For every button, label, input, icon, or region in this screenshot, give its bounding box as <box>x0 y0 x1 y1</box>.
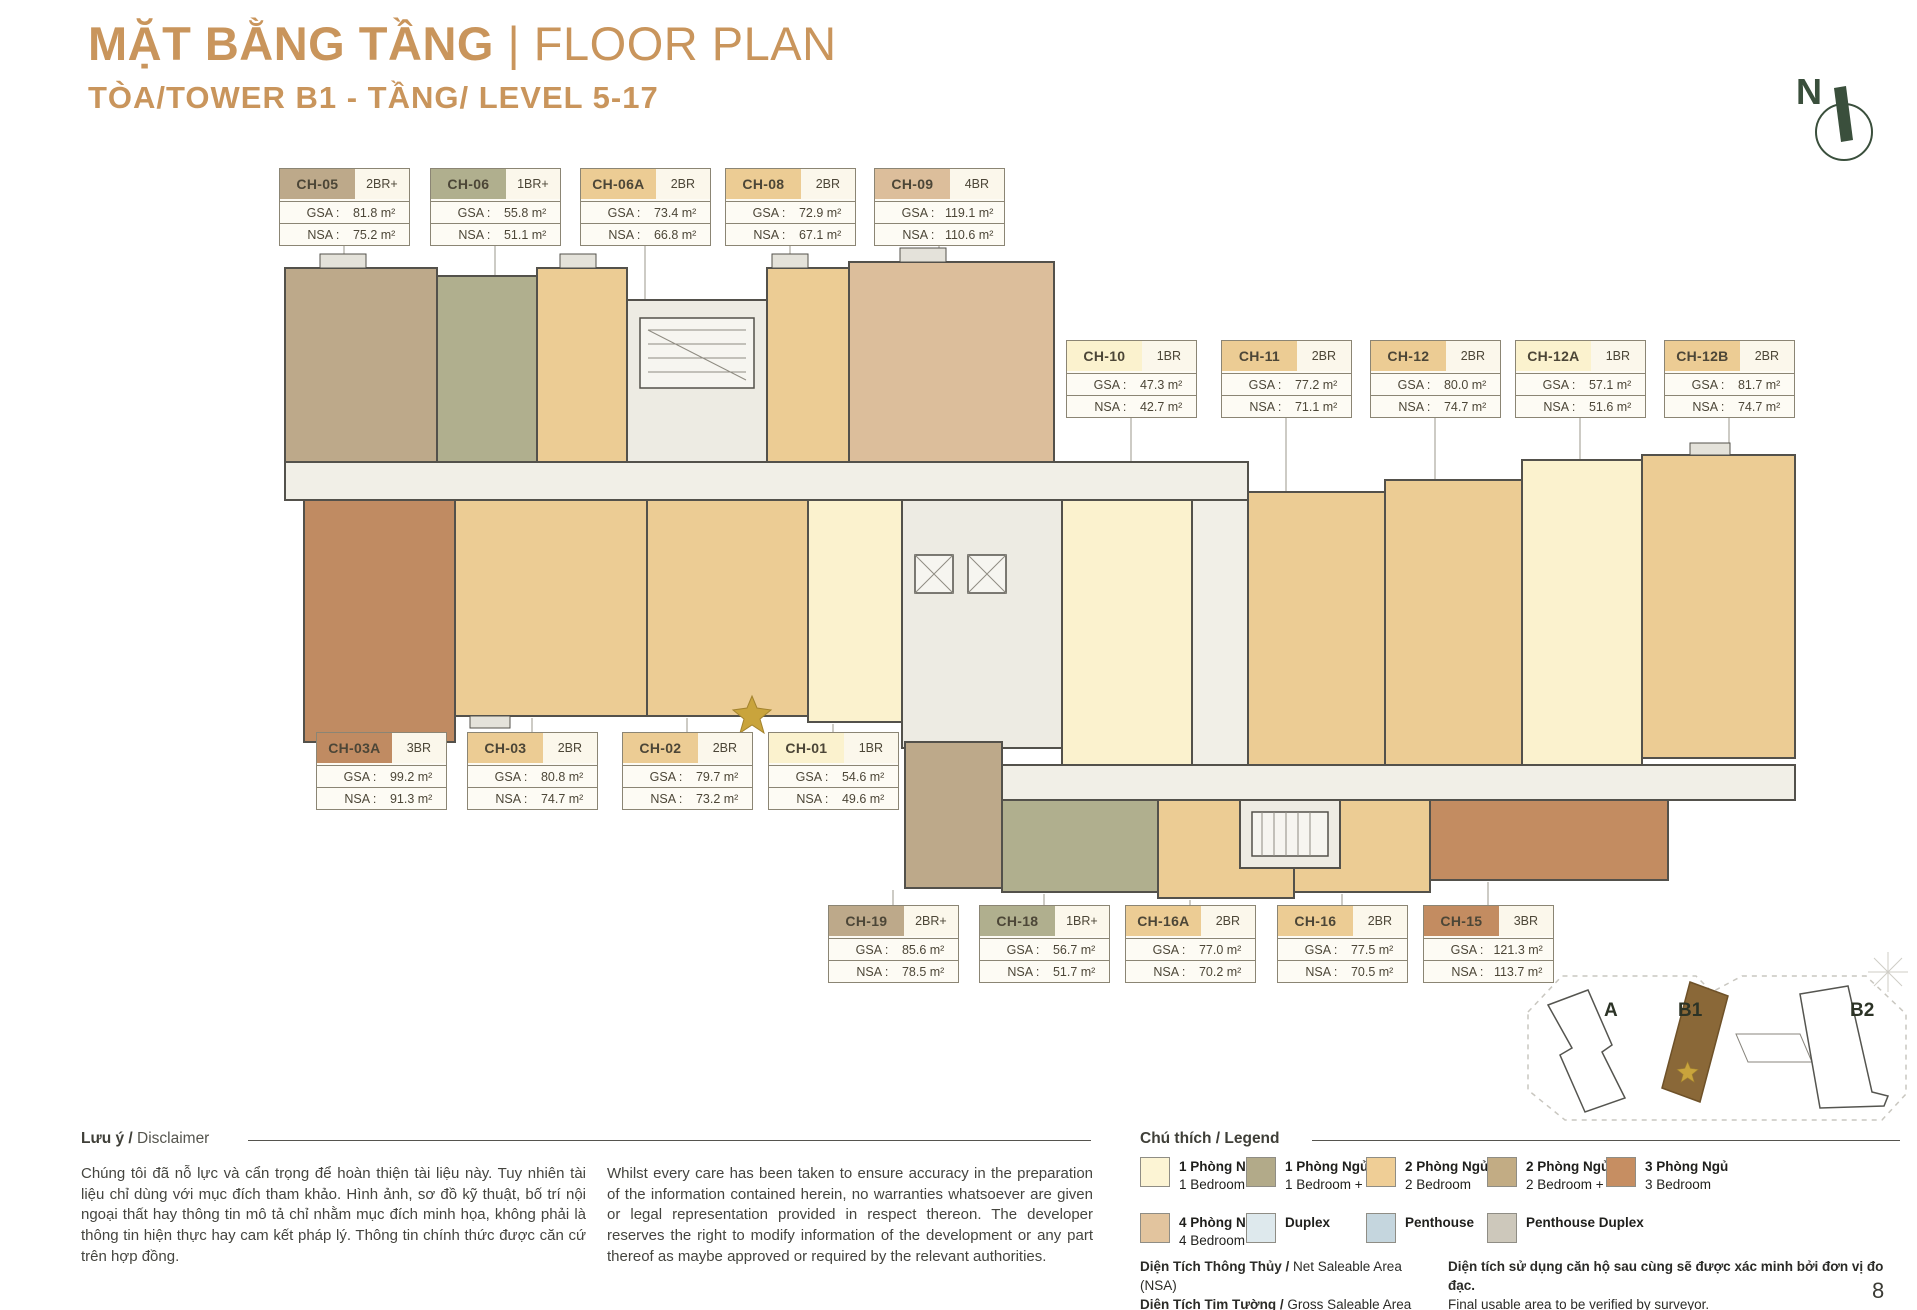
unit-label-ch-03: CH-032BR GSA :80.8 m² NSA :74.7 m² <box>467 732 598 810</box>
gsa-value: 54.6 m² <box>828 770 898 784</box>
gsa-label: GSA : <box>769 770 828 784</box>
nsa-row: NSA :51.6 m² <box>1516 395 1645 417</box>
unit-label-ch-15: CH-153BR GSA :121.3 m² NSA :113.7 m² <box>1423 905 1554 983</box>
nsa-label: NSA : <box>726 228 785 242</box>
nsa-value: 78.5 m² <box>888 965 958 979</box>
gsa-row: GSA :73.4 m² <box>581 201 710 223</box>
gsa-label: GSA : <box>317 770 376 784</box>
tower-b2-outline <box>1800 986 1888 1108</box>
unit-code: CH-12 <box>1371 341 1446 371</box>
unit-code: CH-10 <box>1067 341 1142 371</box>
plan-unit-ch-19 <box>905 742 1002 888</box>
plan-unit-ch-08 <box>767 268 849 462</box>
nsa-row: NSA :51.1 m² <box>431 223 560 245</box>
tower-b1-label: B1 <box>1678 1000 1703 1021</box>
gsa-label: GSA : <box>980 943 1039 957</box>
plan-unit-ch-18 <box>1002 800 1158 892</box>
gsa-label: GSA : <box>875 206 934 220</box>
unit-type: 2BR <box>1740 341 1794 371</box>
gsa-row: GSA :57.1 m² <box>1516 373 1645 395</box>
nsa-value: 51.7 m² <box>1039 965 1109 979</box>
gsa-value: 47.3 m² <box>1126 378 1196 392</box>
unit-code: CH-01 <box>769 733 844 763</box>
gsa-row: GSA :72.9 m² <box>726 201 855 223</box>
compass-rose-icon <box>1868 952 1908 992</box>
nsa-label: NSA : <box>468 792 527 806</box>
unit-code: CH-16 <box>1278 906 1353 936</box>
unit-type: 1BR+ <box>506 169 560 199</box>
unit-label-ch-02: CH-022BR GSA :79.7 m² NSA :73.2 m² <box>622 732 753 810</box>
nsa-label: NSA : <box>980 965 1039 979</box>
nsa-row: NSA :51.7 m² <box>980 960 1109 982</box>
gsa-row: GSA :81.8 m² <box>280 201 409 223</box>
nsa-value: 51.1 m² <box>490 228 560 242</box>
tower-a-label: A <box>1604 1000 1618 1021</box>
gsa-value: 77.5 m² <box>1337 943 1407 957</box>
plan-unit-ch-03 <box>455 500 647 716</box>
gsa-label: GSA : <box>1424 943 1483 957</box>
unit-type: 1BR <box>1591 341 1645 371</box>
gsa-label: GSA : <box>1665 378 1724 392</box>
unit-label-ch-12a: CH-12A1BR GSA :57.1 m² NSA :51.6 m² <box>1515 340 1646 418</box>
gsa-row: GSA :77.0 m² <box>1126 938 1255 960</box>
nsa-row: NSA :74.7 m² <box>1371 395 1500 417</box>
gsa-label: GSA : <box>581 206 640 220</box>
unit-label-ch-06a: CH-06A2BR GSA :73.4 m² NSA :66.8 m² <box>580 168 711 246</box>
unit-code: CH-03 <box>468 733 543 763</box>
unit-code: CH-15 <box>1424 906 1499 936</box>
plan-unit-ch-11 <box>1248 492 1385 765</box>
nsa-value: 70.5 m² <box>1337 965 1407 979</box>
gsa-value: 77.2 m² <box>1281 378 1351 392</box>
unit-label-ch-16: CH-162BR GSA :77.5 m² NSA :70.5 m² <box>1277 905 1408 983</box>
nsa-value: 75.2 m² <box>339 228 409 242</box>
unit-type: 4BR <box>950 169 1004 199</box>
nsa-label: NSA : <box>280 228 339 242</box>
gsa-value: 121.3 m² <box>1483 943 1553 957</box>
nsa-label: NSA : <box>1067 400 1126 414</box>
plan-unit-ch-10 <box>1062 500 1192 765</box>
gsa-row: GSA :80.8 m² <box>468 765 597 787</box>
nsa-row: NSA :75.2 m² <box>280 223 409 245</box>
plan-unit-ch-12 <box>1385 480 1522 765</box>
north-letter: N <box>1796 71 1822 112</box>
north-arrow-icon: N <box>1796 71 1872 160</box>
site-map: A B1 B2 <box>1528 952 1908 1120</box>
plan-core-b <box>902 500 1062 748</box>
unit-label-ch-08: CH-082BR GSA :72.9 m² NSA :67.1 m² <box>725 168 856 246</box>
gsa-value: 79.7 m² <box>682 770 752 784</box>
gsa-value: 72.9 m² <box>785 206 855 220</box>
unit-type: 2BR <box>543 733 597 763</box>
nsa-label: NSA : <box>317 792 376 806</box>
gsa-row: GSA :119.1 m² <box>875 201 1004 223</box>
nsa-value: 71.1 m² <box>1281 400 1351 414</box>
unit-code: CH-11 <box>1222 341 1297 371</box>
nsa-label: NSA : <box>1665 400 1724 414</box>
unit-code: CH-18 <box>980 906 1055 936</box>
floor-plan-page: MẶT BẰNG TẦNG | FLOOR PLAN TÒA/TOWER B1 … <box>0 0 1917 1310</box>
unit-label-ch-10: CH-101BR GSA :47.3 m² NSA :42.7 m² <box>1066 340 1197 418</box>
unit-type: 2BR <box>1297 341 1351 371</box>
gsa-row: GSA :56.7 m² <box>980 938 1109 960</box>
north-needle <box>1834 86 1853 142</box>
nsa-value: 73.2 m² <box>682 792 752 806</box>
gsa-value: 99.2 m² <box>376 770 446 784</box>
gsa-label: GSA : <box>726 206 785 220</box>
nsa-row: NSA :113.7 m² <box>1424 960 1553 982</box>
plan-unit-ch-09 <box>849 262 1054 462</box>
unit-code: CH-16A <box>1126 906 1201 936</box>
unit-code: CH-08 <box>726 169 801 199</box>
unit-type: 2BR+ <box>355 169 409 199</box>
unit-code: CH-12A <box>1516 341 1591 371</box>
nsa-row: NSA :49.6 m² <box>769 787 898 809</box>
stair-c <box>1252 812 1328 856</box>
nsa-value: 70.2 m² <box>1185 965 1255 979</box>
gsa-row: GSA :80.0 m² <box>1371 373 1500 395</box>
gsa-row: GSA :77.2 m² <box>1222 373 1351 395</box>
gsa-row: GSA :77.5 m² <box>1278 938 1407 960</box>
nsa-value: 74.7 m² <box>1430 400 1500 414</box>
site-courtyard <box>1736 1034 1812 1062</box>
nsa-label: NSA : <box>875 228 934 242</box>
gsa-value: 73.4 m² <box>640 206 710 220</box>
gsa-value: 85.6 m² <box>888 943 958 957</box>
gsa-label: GSA : <box>623 770 682 784</box>
unit-type: 2BR <box>1446 341 1500 371</box>
gsa-row: GSA :99.2 m² <box>317 765 446 787</box>
gsa-label: GSA : <box>431 206 490 220</box>
nsa-label: NSA : <box>829 965 888 979</box>
nsa-label: NSA : <box>1278 965 1337 979</box>
gsa-label: GSA : <box>829 943 888 957</box>
nsa-row: NSA :42.7 m² <box>1067 395 1196 417</box>
unit-label-ch-03a: CH-03A3BR GSA :99.2 m² NSA :91.3 m² <box>316 732 447 810</box>
gsa-value: 80.0 m² <box>1430 378 1500 392</box>
gsa-value: 119.1 m² <box>934 206 1004 220</box>
unit-type: 2BR <box>801 169 855 199</box>
nsa-row: NSA :67.1 m² <box>726 223 855 245</box>
gsa-row: GSA :81.7 m² <box>1665 373 1794 395</box>
unit-code: CH-02 <box>623 733 698 763</box>
unit-label-ch-12: CH-122BR GSA :80.0 m² NSA :74.7 m² <box>1370 340 1501 418</box>
plan-unit-ch-02 <box>647 500 808 716</box>
nsa-value: 74.7 m² <box>527 792 597 806</box>
nsa-value: 74.7 m² <box>1724 400 1794 414</box>
plan-unit-ch-15 <box>1430 800 1668 880</box>
unit-label-ch-19: CH-192BR+ GSA :85.6 m² NSA :78.5 m² <box>828 905 959 983</box>
plan-unit-ch-05 <box>285 268 437 462</box>
plan-corridor-b <box>1002 765 1795 800</box>
gsa-value: 56.7 m² <box>1039 943 1109 957</box>
unit-type: 1BR <box>1142 341 1196 371</box>
unit-label-ch-06: CH-061BR+ GSA :55.8 m² NSA :51.1 m² <box>430 168 561 246</box>
stair-a <box>640 318 754 388</box>
unit-label-ch-09: CH-094BR GSA :119.1 m² NSA :110.6 m² <box>874 168 1005 246</box>
gsa-row: GSA :54.6 m² <box>769 765 898 787</box>
nsa-row: NSA :71.1 m² <box>1222 395 1351 417</box>
nsa-row: NSA :73.2 m² <box>623 787 752 809</box>
unit-code: CH-06 <box>431 169 506 199</box>
nsa-row: NSA :74.7 m² <box>1665 395 1794 417</box>
plan-unit-ch-12a <box>1522 460 1642 765</box>
unit-code: CH-09 <box>875 169 950 199</box>
unit-type: 1BR+ <box>1055 906 1109 936</box>
gsa-row: GSA :79.7 m² <box>623 765 752 787</box>
nsa-label: NSA : <box>1222 400 1281 414</box>
plan-lower-band <box>905 742 1795 898</box>
nsa-row: NSA :66.8 m² <box>581 223 710 245</box>
nsa-row: NSA :74.7 m² <box>468 787 597 809</box>
plan-unit-ch-12b <box>1642 455 1795 758</box>
unit-type: 2BR <box>656 169 710 199</box>
nsa-label: NSA : <box>1126 965 1185 979</box>
nsa-row: NSA :70.5 m² <box>1278 960 1407 982</box>
gsa-row: GSA :85.6 m² <box>829 938 958 960</box>
unit-type: 3BR <box>392 733 446 763</box>
gsa-label: GSA : <box>1067 378 1126 392</box>
nsa-row: NSA :110.6 m² <box>875 223 1004 245</box>
plan-middle-band <box>304 455 1795 765</box>
nsa-label: NSA : <box>1371 400 1430 414</box>
gsa-label: GSA : <box>1371 378 1430 392</box>
nsa-label: NSA : <box>1516 400 1575 414</box>
unit-type: 3BR <box>1499 906 1553 936</box>
plan-unit-ch-01 <box>808 500 902 722</box>
unit-code: CH-03A <box>317 733 392 763</box>
gsa-value: 81.8 m² <box>339 206 409 220</box>
gsa-value: 57.1 m² <box>1575 378 1645 392</box>
gsa-row: GSA :121.3 m² <box>1424 938 1553 960</box>
unit-label-ch-11: CH-112BR GSA :77.2 m² NSA :71.1 m² <box>1221 340 1352 418</box>
nsa-label: NSA : <box>1424 965 1483 979</box>
gsa-label: GSA : <box>280 206 339 220</box>
nsa-row: NSA :91.3 m² <box>317 787 446 809</box>
plan-link-corridor <box>1192 500 1248 765</box>
gsa-row: GSA :55.8 m² <box>431 201 560 223</box>
unit-label-ch-16a: CH-16A2BR GSA :77.0 m² NSA :70.2 m² <box>1125 905 1256 983</box>
unit-label-ch-18: CH-181BR+ GSA :56.7 m² NSA :51.7 m² <box>979 905 1110 983</box>
nsa-value: 51.6 m² <box>1575 400 1645 414</box>
nsa-value: 66.8 m² <box>640 228 710 242</box>
nsa-value: 42.7 m² <box>1126 400 1196 414</box>
nsa-label: NSA : <box>581 228 640 242</box>
nsa-value: 67.1 m² <box>785 228 855 242</box>
gsa-label: GSA : <box>1222 378 1281 392</box>
gsa-label: GSA : <box>468 770 527 784</box>
unit-label-ch-12b: CH-12B2BR GSA :81.7 m² NSA :74.7 m² <box>1664 340 1795 418</box>
unit-label-ch-05: CH-052BR+ GSA :81.8 m² NSA :75.2 m² <box>279 168 410 246</box>
unit-code: CH-06A <box>581 169 656 199</box>
plan-unit-ch-06a <box>537 268 627 462</box>
plan-unit-ch-06 <box>437 276 537 462</box>
unit-label-ch-01: CH-011BR GSA :54.6 m² NSA :49.6 m² <box>768 732 899 810</box>
nsa-label: NSA : <box>431 228 490 242</box>
unit-code: CH-05 <box>280 169 355 199</box>
nsa-label: NSA : <box>623 792 682 806</box>
unit-type: 2BR <box>698 733 752 763</box>
unit-type: 1BR <box>844 733 898 763</box>
nsa-row: NSA :70.2 m² <box>1126 960 1255 982</box>
gsa-label: GSA : <box>1278 943 1337 957</box>
nsa-value: 91.3 m² <box>376 792 446 806</box>
gsa-label: GSA : <box>1126 943 1185 957</box>
gsa-value: 80.8 m² <box>527 770 597 784</box>
unit-type: 2BR <box>1201 906 1255 936</box>
nsa-value: 49.6 m² <box>828 792 898 806</box>
gsa-value: 81.7 m² <box>1724 378 1794 392</box>
nsa-value: 113.7 m² <box>1483 965 1553 979</box>
unit-code: CH-12B <box>1665 341 1740 371</box>
gsa-label: GSA : <box>1516 378 1575 392</box>
nsa-value: 110.6 m² <box>934 228 1004 242</box>
plan-corridor-a <box>285 462 1248 500</box>
tower-b2-label: B2 <box>1850 1000 1874 1021</box>
gsa-row: GSA :47.3 m² <box>1067 373 1196 395</box>
unit-type: 2BR <box>1353 906 1407 936</box>
nsa-label: NSA : <box>769 792 828 806</box>
nsa-row: NSA :78.5 m² <box>829 960 958 982</box>
plan-unit-ch-03a <box>304 500 455 742</box>
unit-type: 2BR+ <box>904 906 958 936</box>
gsa-value: 77.0 m² <box>1185 943 1255 957</box>
gsa-value: 55.8 m² <box>490 206 560 220</box>
unit-code: CH-19 <box>829 906 904 936</box>
